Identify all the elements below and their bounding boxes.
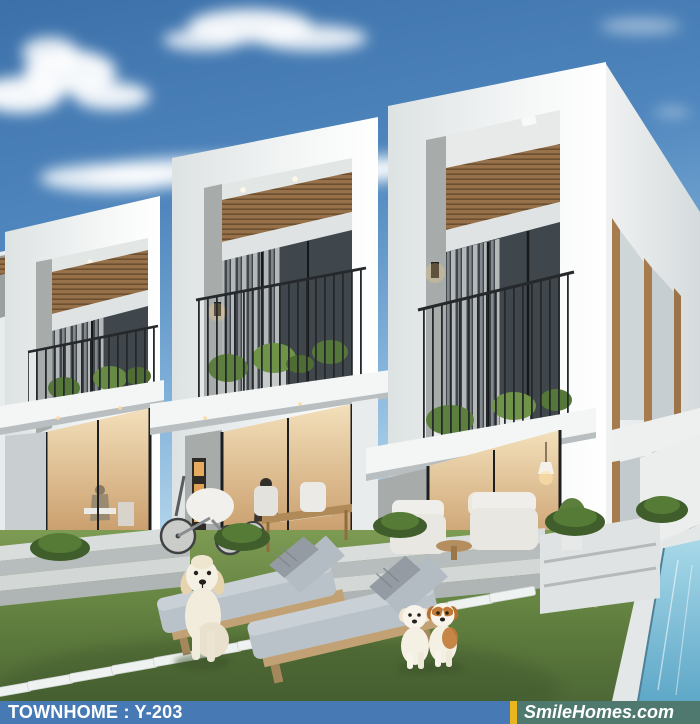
scene-canvas bbox=[0, 0, 700, 701]
bottom-banner: TOWNHOME : Y-203 SmileHomes.com bbox=[0, 701, 700, 724]
brand-label: SmileHomes.com bbox=[517, 701, 700, 724]
banner-divider-stripe bbox=[510, 701, 517, 724]
unit-a bbox=[0, 196, 164, 580]
project-label: TOWNHOME : Y-203 bbox=[0, 701, 510, 724]
townhome-render: TOWNHOME : Y-203 SmileHomes.com bbox=[0, 0, 700, 724]
